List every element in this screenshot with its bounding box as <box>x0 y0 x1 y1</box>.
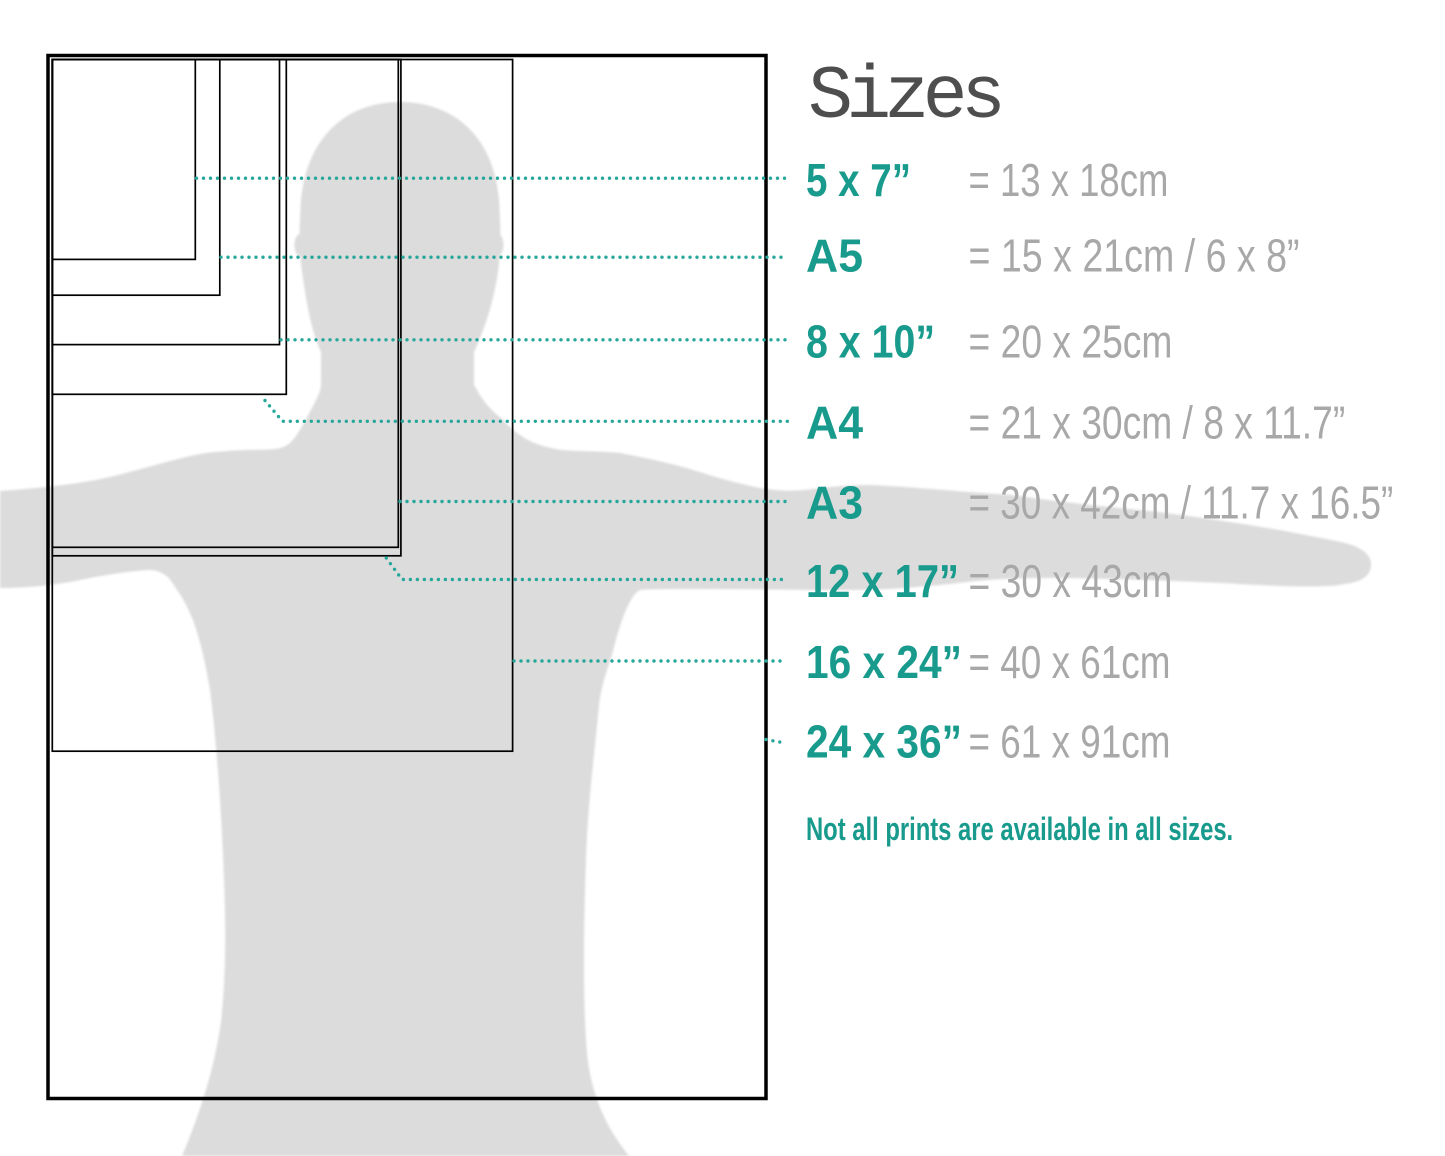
svg-text:= 30 x 43cm: = 30 x 43cm <box>969 555 1173 607</box>
svg-text:12 x 17”: 12 x 17” <box>806 556 959 607</box>
svg-text:= 40 x 61cm: = 40 x 61cm <box>969 636 1171 688</box>
svg-text:A4: A4 <box>806 397 863 449</box>
svg-text:8 x 10”: 8 x 10” <box>806 317 935 369</box>
svg-text:Not all prints are available i: Not all prints are available in all size… <box>806 810 1233 846</box>
svg-text:16 x 24”: 16 x 24” <box>806 638 962 689</box>
svg-text:= 13 x 18cm: = 13 x 18cm <box>969 154 1169 206</box>
svg-text:= 21 x 30cm / 8 x 11.7”: = 21 x 30cm / 8 x 11.7” <box>969 397 1346 449</box>
svg-text:A5: A5 <box>806 230 863 282</box>
svg-text:= 15 x 21cm / 6 x 8”: = 15 x 21cm / 6 x 8” <box>969 230 1300 281</box>
svg-text:Sizes: Sizes <box>808 55 1000 140</box>
svg-text:= 61 x 91cm: = 61 x 91cm <box>969 716 1171 768</box>
svg-text:24 x 36”: 24 x 36” <box>806 717 962 768</box>
svg-text:A3: A3 <box>806 477 863 529</box>
svg-text:= 20 x 25cm: = 20 x 25cm <box>969 316 1173 368</box>
svg-text:5 x 7”: 5 x 7” <box>806 155 911 206</box>
svg-text:= 30 x 42cm / 11.7 x 16.5”: = 30 x 42cm / 11.7 x 16.5” <box>969 477 1394 529</box>
